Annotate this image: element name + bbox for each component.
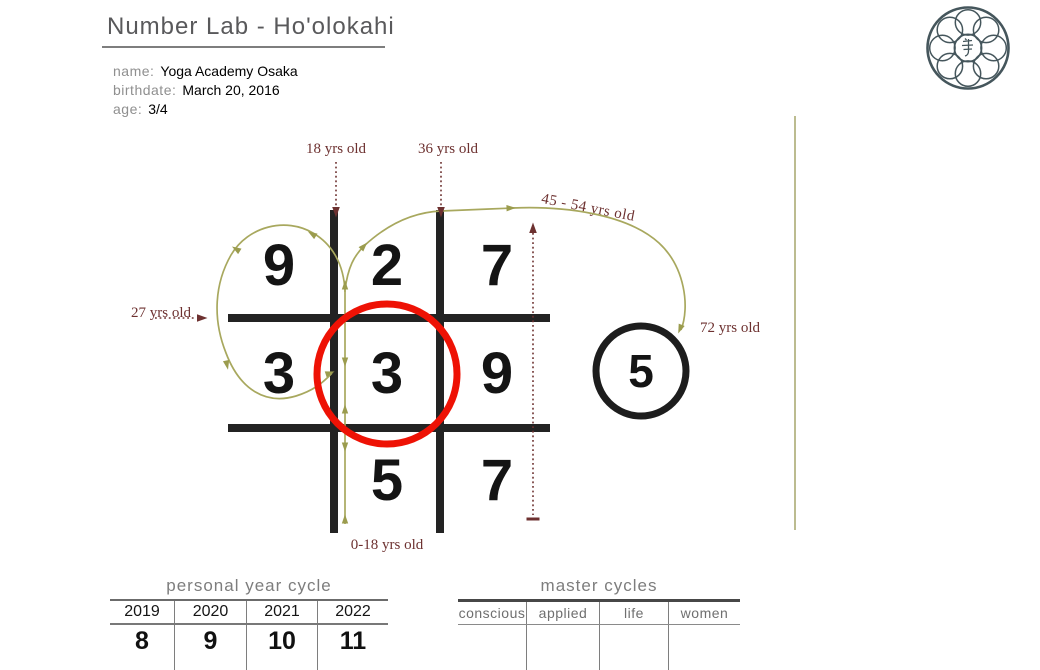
cycle-value — [669, 625, 740, 670]
grid-cell-middle-right: 9 — [449, 323, 545, 423]
year-value: 11 — [318, 625, 388, 670]
year-header: 2021 — [247, 601, 318, 623]
master-cycles-table: master cycles conscious applied life wom… — [458, 576, 740, 670]
client-info: name:Yoga Academy Osaka birthdate:March … — [113, 62, 298, 119]
grid-cell-bottom-right: 7 — [449, 430, 545, 530]
grid-cell-middle-left: 3 — [231, 323, 327, 423]
seal-glyph-icon — [962, 39, 973, 57]
number-lab-worksheet: Number Lab - Ho'olokahi name:Yoga Academ… — [0, 0, 1040, 670]
outside-circle-value: 5 — [611, 341, 671, 401]
age-18-label: 18 yrs old — [294, 141, 378, 158]
year-header: 2022 — [318, 601, 388, 623]
name-label: name: — [113, 63, 154, 79]
age-27-label: 27 yrs old — [131, 305, 191, 322]
year-value: 8 — [110, 625, 175, 670]
grid-cell-top-right: 7 — [449, 215, 545, 315]
age-value: 3/4 — [148, 101, 167, 117]
name-row: name:Yoga Academy Osaka — [113, 62, 298, 81]
master-cycles-header-row: conscious applied life women — [458, 599, 740, 625]
age-45-54-label: 45 - 54 yrs old — [540, 191, 636, 226]
grid-cell-bottom-left — [231, 430, 327, 530]
cycle-value — [527, 625, 600, 670]
master-cycles-title: master cycles — [458, 576, 740, 597]
birthdate-value: March 20, 2016 — [182, 82, 279, 98]
personal-year-header-row: 2019 2020 2021 2022 — [110, 599, 388, 625]
cycle-header: life — [600, 602, 669, 624]
birthdate-row: birthdate:March 20, 2016 — [113, 81, 298, 100]
cycle-header: applied — [527, 602, 600, 624]
grid-cell-top-left: 9 — [231, 215, 327, 315]
master-cycles-values-row — [458, 625, 740, 670]
age-72-label: 72 yrs old — [700, 320, 760, 337]
personal-year-values-row: 8 9 10 11 — [110, 625, 388, 670]
name-value: Yoga Academy Osaka — [160, 63, 297, 79]
cycle-value — [458, 625, 527, 670]
birthdate-label: birthdate: — [113, 82, 176, 98]
age-label: age: — [113, 101, 142, 117]
age-row: age:3/4 — [113, 100, 298, 119]
title-underline — [102, 46, 385, 48]
cycle-header: conscious — [458, 602, 527, 624]
personal-year-cycle-table: personal year cycle 2019 2020 2021 2022 … — [110, 576, 388, 670]
grid-cell-middle-center: 3 — [339, 323, 435, 423]
year-header: 2020 — [175, 601, 247, 623]
eight-petal-seal-icon — [925, 5, 1011, 91]
vertical-divider — [794, 116, 796, 530]
grid-cell-bottom-center: 5 — [339, 430, 435, 530]
age-36-label: 36 yrs old — [406, 141, 490, 158]
year-value: 10 — [247, 625, 318, 670]
cycle-header: women — [669, 602, 740, 624]
year-header: 2019 — [110, 601, 175, 623]
age-0-18-label: 0-18 yrs old — [341, 537, 433, 554]
cycle-value — [600, 625, 669, 670]
grid-cell-top-center: 2 — [339, 215, 435, 315]
page-title: Number Lab - Ho'olokahi — [107, 13, 395, 41]
personal-year-cycle-title: personal year cycle — [110, 576, 388, 597]
year-value: 9 — [175, 625, 247, 670]
